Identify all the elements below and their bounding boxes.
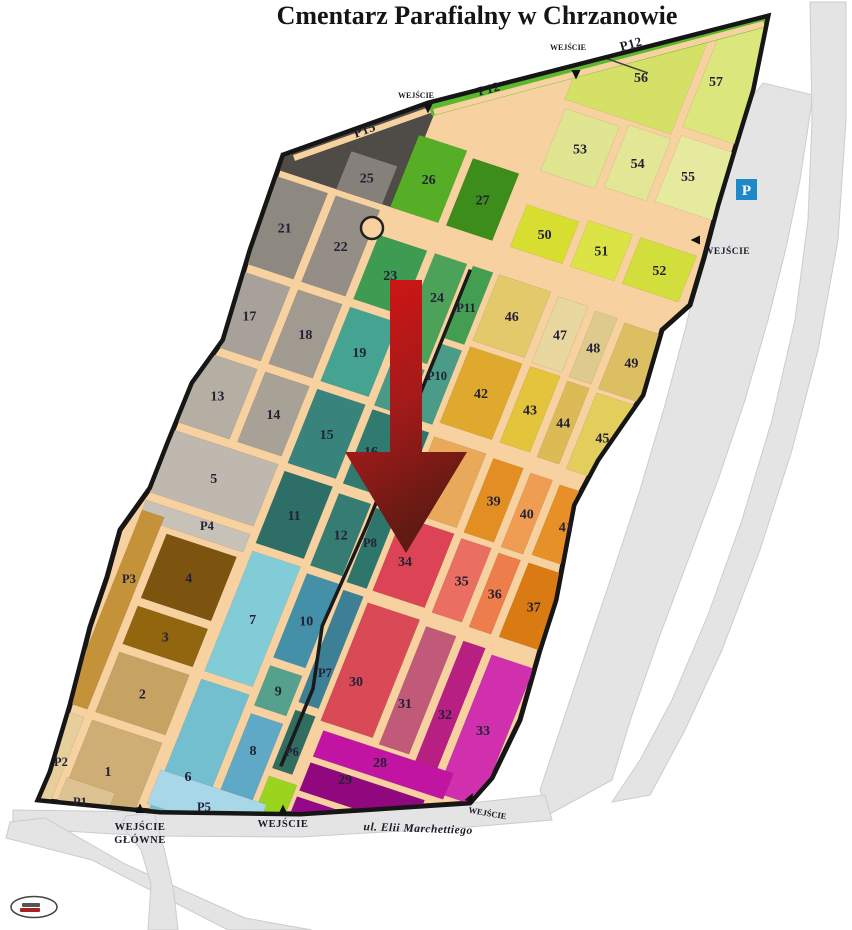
entrance-label-bottom: WEJŚCIE: [258, 818, 309, 830]
section-label-45: 45: [595, 432, 609, 447]
section-label-5: 5: [210, 472, 217, 487]
section-label-P2: P2: [54, 755, 68, 769]
entrance-label-main-1: WEJŚCIE: [115, 821, 166, 833]
section-label-35: 35: [455, 574, 469, 589]
section-label-6: 6: [185, 770, 192, 785]
section-label-39: 39: [487, 494, 501, 509]
section-label-10: 10: [299, 615, 313, 630]
section-label-P6: P6: [285, 745, 299, 759]
entrance-label-main-2: GŁÓWNE: [114, 834, 165, 846]
artlook-logo: [11, 897, 57, 918]
section-label-26: 26: [422, 173, 436, 188]
section-label-25: 25: [360, 172, 374, 187]
section-label-34: 34: [398, 555, 412, 570]
section-label-19: 19: [352, 346, 366, 361]
section-label-27: 27: [476, 194, 490, 209]
section-label-4: 4: [185, 572, 192, 587]
section-label-48: 48: [586, 342, 600, 357]
section-label-2: 2: [139, 688, 146, 703]
section-label-24: 24: [430, 291, 444, 306]
section-label-P7: P7: [318, 666, 332, 680]
parking-icon-label: P: [742, 183, 751, 199]
section-label-8: 8: [250, 744, 257, 759]
section-label-11: 11: [288, 509, 301, 524]
section-label-43: 43: [523, 403, 537, 418]
section-label-56: 56: [634, 71, 648, 86]
section-label-52: 52: [652, 264, 666, 279]
section-label-29: 29: [338, 773, 352, 788]
cemetery-map-page: { "title": "Cmentarz Parafialny w Chrzan…: [0, 0, 852, 930]
section-label-28: 28: [373, 756, 387, 771]
section-label-1: 1: [105, 765, 112, 780]
cemetery-map: 212225262750515253545556572324P114647484…: [0, 0, 852, 930]
section-label-40: 40: [520, 508, 534, 523]
section-label-9: 9: [275, 685, 282, 700]
section-label-31: 31: [398, 697, 412, 712]
entrance-label-right: WEJŚCIE: [704, 245, 750, 257]
entrance-label-top-mid: WEJŚCIE: [398, 90, 434, 100]
section-label-P3: P3: [122, 572, 136, 586]
section-label-14: 14: [266, 408, 280, 423]
section-label-36: 36: [488, 588, 502, 603]
section-label-33: 33: [476, 724, 490, 739]
section-label-18: 18: [298, 328, 312, 343]
section-label-47: 47: [553, 328, 567, 343]
section-label-22: 22: [334, 240, 348, 255]
entrance-label-top-right: WEJŚCIE: [550, 42, 586, 52]
section-label-30: 30: [349, 675, 363, 690]
section-label-51: 51: [594, 245, 608, 260]
section-label-32: 32: [438, 708, 452, 723]
section-label-42: 42: [474, 387, 488, 402]
section-label-17: 17: [242, 310, 256, 325]
section-label-P5: P5: [197, 800, 211, 814]
section-label-44: 44: [556, 417, 570, 432]
section-label-3: 3: [162, 631, 169, 646]
section-label-55: 55: [681, 170, 695, 185]
section-label-15: 15: [320, 428, 334, 443]
section-label-41: 41: [559, 520, 573, 535]
section-label-37: 37: [527, 600, 541, 615]
section-label-46: 46: [505, 310, 519, 325]
section-label-50: 50: [538, 228, 552, 243]
junction-node: [361, 217, 383, 239]
section-label-12: 12: [334, 529, 348, 544]
section-label-P10: P10: [427, 369, 447, 383]
section-label-P8: P8: [363, 536, 377, 550]
map-title: Cmentarz Parafialny w Chrzanowie: [277, 1, 678, 30]
street-label: ul. Elii Marchettiego: [363, 821, 473, 837]
section-label-P4: P4: [200, 519, 215, 533]
section-label-21: 21: [278, 222, 292, 237]
section-label-7: 7: [249, 613, 256, 628]
section-label-P1: P1: [73, 795, 87, 809]
section-label-53: 53: [573, 143, 587, 158]
section-label-49: 49: [624, 356, 638, 371]
section-label-13: 13: [210, 390, 224, 405]
section-label-54: 54: [631, 157, 645, 172]
section-label-57: 57: [709, 75, 723, 90]
section-label-P11: P11: [456, 301, 475, 315]
